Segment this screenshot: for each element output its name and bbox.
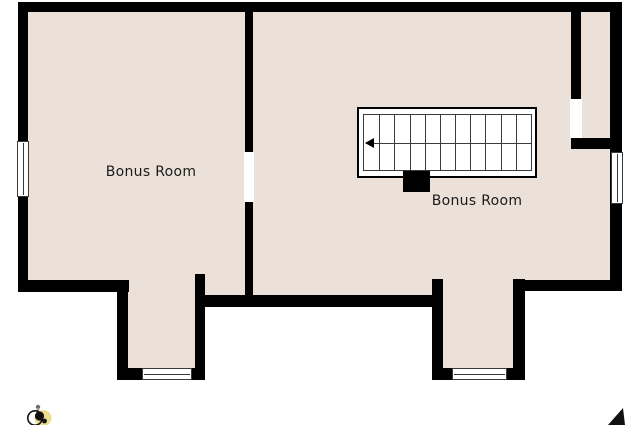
stair-tread-line [485,115,486,170]
stair-tread-line [516,115,517,170]
room-label-left: Bonus Room [90,164,212,180]
stair-tread-line [470,115,471,170]
stair-tread-line [394,115,395,170]
doorway-closet [570,99,582,138]
stair-tread-line [501,115,502,170]
floor-area-middle-strip [205,280,432,295]
stair-tread-line [379,115,380,170]
staircase-treads [363,114,532,171]
wall-right [610,2,622,291]
divider-wall-upper [245,12,253,152]
divider-wall-lower [245,202,253,295]
stair-tread-line [410,115,411,170]
floorplan-canvas: Bonus Room Bonus Room [0,0,640,425]
north-arrow-icon [608,408,626,425]
stair-direction-arrow-icon [365,138,374,148]
dormer-right-east-wall [513,279,525,380]
window-dormer-right [452,368,507,380]
stair-tread-line [455,115,456,170]
floor-area-left-dormer [128,280,195,368]
room-label-right: Bonus Room [416,193,538,209]
dormer-right-west-wall [432,279,443,380]
doorway-divider [244,152,254,202]
stair-landing-marker [403,171,430,192]
staircase [357,107,537,178]
logo-icon [22,401,52,425]
stair-run-line [366,143,531,144]
wall-bottom-middle [195,295,443,307]
window-right [611,152,623,204]
floor-area-right-dormer [443,280,513,368]
stair-tread-line [440,115,441,170]
dormer-left-west-wall [117,280,128,380]
wall-bottom-right [513,280,622,291]
dormer-left-east-wall [195,274,205,380]
stair-tread-line [425,115,426,170]
wall-top [20,2,622,12]
closet-wall-west [571,12,581,99]
closet-wall-south [571,138,610,149]
window-dormer-left [142,368,192,380]
wall-bottom-left [18,280,129,292]
window-left [17,141,29,197]
